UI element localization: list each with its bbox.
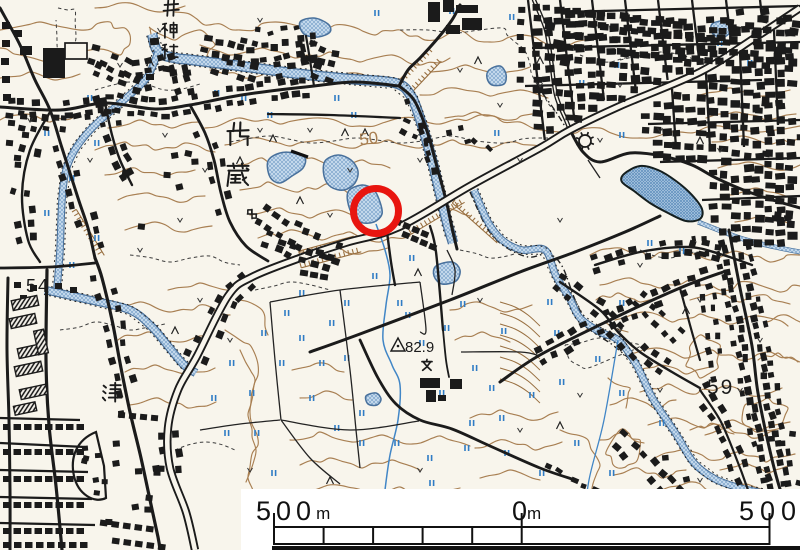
svg-text:59: 59 [707,376,734,399]
svg-text:82.9: 82.9 [405,339,434,356]
svg-text:54: 54 [26,276,50,296]
svg-text:50: 50 [358,128,379,149]
